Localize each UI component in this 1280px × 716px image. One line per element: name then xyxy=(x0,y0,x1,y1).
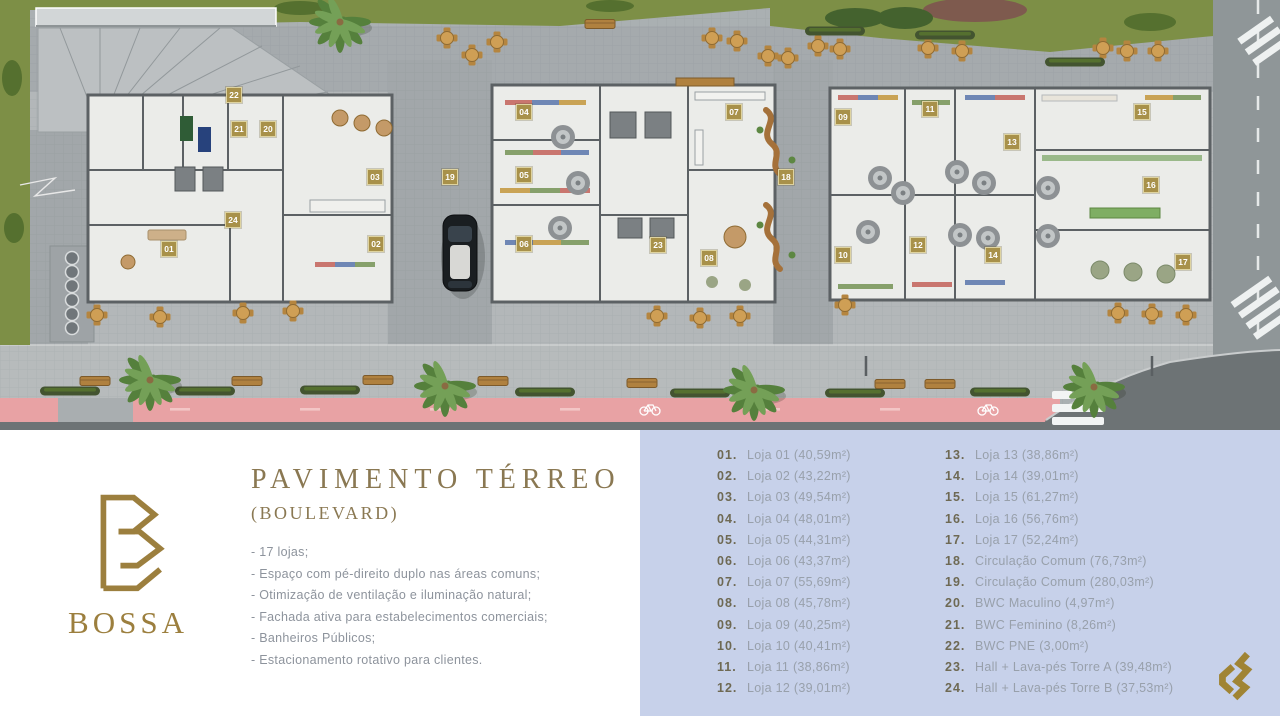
legend-item: 15.Loja 15 (61,27m²) xyxy=(945,486,1173,507)
legend-item-label: Loja 04 (48,01m²) xyxy=(747,512,851,526)
plan-badge-18: 18 xyxy=(778,169,794,185)
plan-badge-15: 15 xyxy=(1134,104,1150,120)
plan-badge-04: 04 xyxy=(516,104,532,120)
plan-badge-06: 06 xyxy=(516,236,532,252)
legend-item-label: Loja 02 (43,22m²) xyxy=(747,469,851,483)
plan-badge-12: 12 xyxy=(910,237,926,253)
legend-item-label: Loja 06 (43,37m²) xyxy=(747,554,851,568)
brand-block: BOSSA xyxy=(58,490,198,641)
feature-item: - Estacionamento rotativo para clientes. xyxy=(251,650,548,672)
plan-badge-10: 10 xyxy=(835,247,851,263)
legend-item: 23.Hall + Lava-pés Torre A (39,48m²) xyxy=(945,656,1173,677)
legend-item-number: 07. xyxy=(717,572,747,593)
legend-item-label: Loja 08 (45,78m²) xyxy=(747,596,851,610)
legend-item: 20.BWC Maculino (4,97m²) xyxy=(945,592,1173,613)
legend-item: 11.Loja 11 (38,86m²) xyxy=(717,656,851,677)
feature-item: - Banheiros Públicos; xyxy=(251,628,548,650)
legend-item-label: Hall + Lava-pés Torre A (39,48m²) xyxy=(975,660,1172,674)
plan-badge-19: 19 xyxy=(442,169,458,185)
bossa-monogram-icon xyxy=(80,490,176,594)
legend-item-label: Circulação Comum (280,03m²) xyxy=(975,575,1154,589)
legend-column-2: 13.Loja 13 (38,86m²) 14.Loja 14 (39,01m²… xyxy=(945,444,1173,698)
legend-item-number: 15. xyxy=(945,487,975,508)
legend-item: 05.Loja 05 (44,31m²) xyxy=(717,529,851,550)
info-band: BOSSA PAVIMENTO TÉRREO (BOULEVARD) - 17 … xyxy=(0,430,1280,716)
legend-item-number: 12. xyxy=(717,678,747,699)
legend-item: 14.Loja 14 (39,01m²) xyxy=(945,465,1173,486)
legend-item: 01.Loja 01 (40,59m²) xyxy=(717,444,851,465)
legend-item: 06.Loja 06 (43,37m²) xyxy=(717,550,851,571)
legend-item-label: Loja 01 (40,59m²) xyxy=(747,448,851,462)
legend-item-number: 24. xyxy=(945,678,975,699)
floor-plan-render: 0102030405060708091011121314151617181920… xyxy=(0,0,1280,430)
plan-badge-17: 17 xyxy=(1175,254,1191,270)
plan-badge-02: 02 xyxy=(368,236,384,252)
legend-column-1: 01.Loja 01 (40,59m²) 02.Loja 02 (43,22m²… xyxy=(717,444,851,698)
legend-item: 03.Loja 03 (49,54m²) xyxy=(717,486,851,507)
legend-item-label: Hall + Lava-pés Torre B (37,53m²) xyxy=(975,681,1173,695)
plan-badge-08: 08 xyxy=(701,250,717,266)
legend-item-label: Loja 11 (38,86m²) xyxy=(747,660,850,674)
legend-item-label: Loja 14 (39,01m²) xyxy=(975,469,1079,483)
page: 0102030405060708091011121314151617181920… xyxy=(0,0,1280,716)
legend-item-number: 14. xyxy=(945,466,975,487)
plan-badge-24: 24 xyxy=(225,212,241,228)
legend-item-number: 18. xyxy=(945,551,975,572)
legend-item-number: 10. xyxy=(717,636,747,657)
page-subtitle: (BOULEVARD) xyxy=(251,503,399,524)
legend-item-label: Loja 16 (56,76m²) xyxy=(975,512,1079,526)
legend-item: 02.Loja 02 (43,22m²) xyxy=(717,465,851,486)
legend-item-label: Loja 15 (61,27m²) xyxy=(975,490,1079,504)
legend-item: 21.BWC Feminino (8,26m²) xyxy=(945,614,1173,635)
legend-item-label: BWC Feminino (8,26m²) xyxy=(975,618,1116,632)
brand-wordmark: BOSSA xyxy=(58,605,198,641)
legend-item-number: 08. xyxy=(717,593,747,614)
plan-badge-05: 05 xyxy=(516,167,532,183)
legend-item-number: 20. xyxy=(945,593,975,614)
plan-badge-11: 11 xyxy=(922,101,938,117)
legend-item-label: Loja 03 (49,54m²) xyxy=(747,490,851,504)
plan-badge-16: 16 xyxy=(1143,177,1159,193)
legend-item: 08.Loja 08 (45,78m²) xyxy=(717,592,851,613)
legend-item: 24.Hall + Lava-pés Torre B (37,53m²) xyxy=(945,677,1173,698)
legend-item-number: 22. xyxy=(945,636,975,657)
legend-item: 17.Loja 17 (52,24m²) xyxy=(945,529,1173,550)
legend-item-label: Loja 12 (39,01m²) xyxy=(747,681,851,695)
legend-item: 13.Loja 13 (38,86m²) xyxy=(945,444,1173,465)
legend-item: 22.BWC PNE (3,00m²) xyxy=(945,635,1173,656)
legend-item-number: 16. xyxy=(945,509,975,530)
legend-item-label: BWC Maculino (4,97m²) xyxy=(975,596,1115,610)
legend-item-number: 01. xyxy=(717,445,747,466)
plan-badge-22: 22 xyxy=(226,87,242,103)
legend-item: 16.Loja 16 (56,76m²) xyxy=(945,508,1173,529)
page-title: PAVIMENTO TÉRREO xyxy=(251,464,621,496)
legend-item: 07.Loja 07 (55,69m²) xyxy=(717,571,851,592)
legend-item-number: 05. xyxy=(717,530,747,551)
badge-layer: 0102030405060708091011121314151617181920… xyxy=(0,0,1280,430)
legend-item-number: 19. xyxy=(945,572,975,593)
legend-item: 19.Circulação Comum (280,03m²) xyxy=(945,571,1173,592)
info-panel-right: 01.Loja 01 (40,59m²) 02.Loja 02 (43,22m²… xyxy=(640,430,1280,716)
legend-item-number: 04. xyxy=(717,509,747,530)
feature-item: - Otimização de ventilação e iluminação … xyxy=(251,585,548,607)
legend-item-label: Loja 05 (44,31m²) xyxy=(747,533,851,547)
plan-badge-07: 07 xyxy=(726,104,742,120)
legend-item-number: 11. xyxy=(717,657,747,678)
plan-badge-01: 01 xyxy=(161,241,177,257)
legend-item-number: 21. xyxy=(945,615,975,636)
legend-item-number: 06. xyxy=(717,551,747,572)
legend-item-label: BWC PNE (3,00m²) xyxy=(975,639,1089,653)
legend-item-label: Circulação Comum (76,73m²) xyxy=(975,554,1147,568)
legend-item: 18.Circulação Comum (76,73m²) xyxy=(945,550,1173,571)
legend-item: 12.Loja 12 (39,01m²) xyxy=(717,677,851,698)
feature-list: - 17 lojas; - Espaço com pé-direito dupl… xyxy=(251,542,548,671)
legend-item-label: Loja 07 (55,69m²) xyxy=(747,575,851,589)
legend-item-number: 17. xyxy=(945,530,975,551)
info-panel-left: BOSSA PAVIMENTO TÉRREO (BOULEVARD) - 17 … xyxy=(0,430,640,716)
legend-item-number: 02. xyxy=(717,466,747,487)
legend-item-number: 13. xyxy=(945,445,975,466)
legend-item-label: Loja 09 (40,25m²) xyxy=(747,618,851,632)
feature-item: - Espaço com pé-direito duplo nas áreas … xyxy=(251,564,548,586)
plan-badge-23: 23 xyxy=(650,237,666,253)
plan-badge-21: 21 xyxy=(231,121,247,137)
plan-badge-14: 14 xyxy=(985,247,1001,263)
legend-item-number: 03. xyxy=(717,487,747,508)
plan-badge-09: 09 xyxy=(835,109,851,125)
feature-item: - 17 lojas; xyxy=(251,542,548,564)
legend-item-number: 23. xyxy=(945,657,975,678)
legend-item: 09.Loja 09 (40,25m²) xyxy=(717,614,851,635)
plan-badge-20: 20 xyxy=(260,121,276,137)
legend-item-number: 09. xyxy=(717,615,747,636)
legend-item-label: Loja 17 (52,24m²) xyxy=(975,533,1079,547)
legend-item: 04.Loja 04 (48,01m²) xyxy=(717,508,851,529)
plan-badge-13: 13 xyxy=(1004,134,1020,150)
feature-item: - Fachada ativa para estabelecimentos co… xyxy=(251,607,548,629)
bossa-mark-icon xyxy=(1216,650,1258,702)
legend-item-label: Loja 13 (38,86m²) xyxy=(975,448,1079,462)
legend-item-label: Loja 10 (40,41m²) xyxy=(747,639,851,653)
plan-badge-03: 03 xyxy=(367,169,383,185)
legend-item: 10.Loja 10 (40,41m²) xyxy=(717,635,851,656)
